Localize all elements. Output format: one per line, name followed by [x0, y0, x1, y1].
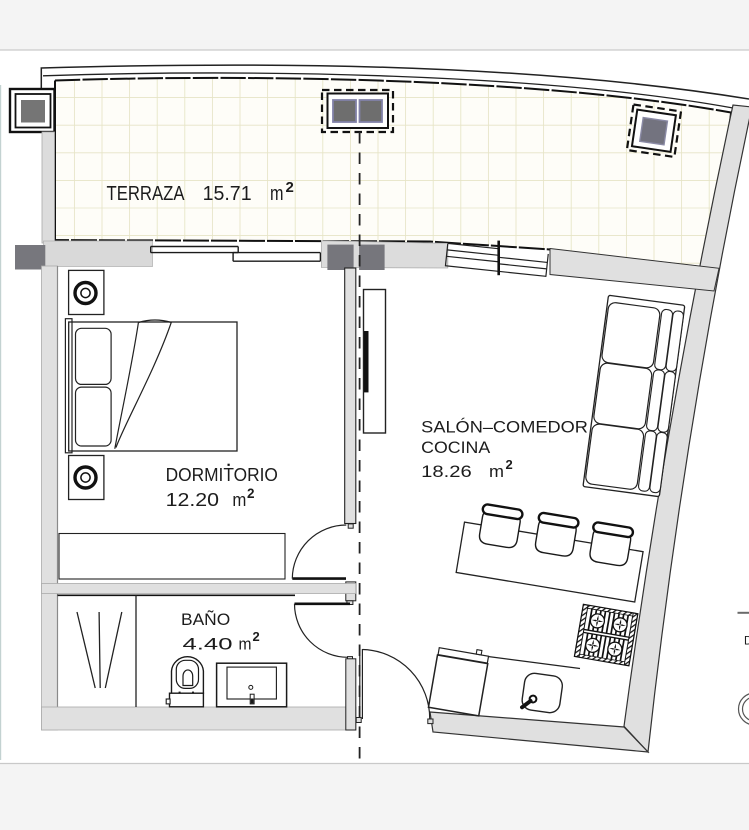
svg-text:m: m	[489, 462, 504, 481]
svg-text:BAÑO: BAÑO	[181, 610, 230, 629]
svg-text:18.26: 18.26	[421, 462, 472, 481]
svg-text:SALÓN–COMEDOR: SALÓN–COMEDOR	[421, 417, 588, 436]
svg-text:2: 2	[286, 179, 294, 196]
svg-text:D: D	[744, 635, 749, 647]
svg-text:2: 2	[506, 457, 513, 472]
svg-text:DORMITORIO: DORMITORIO	[166, 464, 278, 485]
svg-text:COCINA: COCINA	[421, 438, 491, 457]
svg-text:TERRAZA: TERRAZA	[107, 183, 186, 205]
svg-text:15.71: 15.71	[203, 183, 252, 205]
svg-text:m: m	[270, 183, 284, 205]
svg-text:m: m	[232, 489, 246, 510]
svg-text:12.20: 12.20	[166, 489, 219, 510]
svg-text:m: m	[239, 634, 252, 653]
svg-text:2: 2	[253, 629, 260, 644]
svg-text:4.40: 4.40	[183, 634, 233, 653]
svg-text:2: 2	[247, 486, 255, 501]
